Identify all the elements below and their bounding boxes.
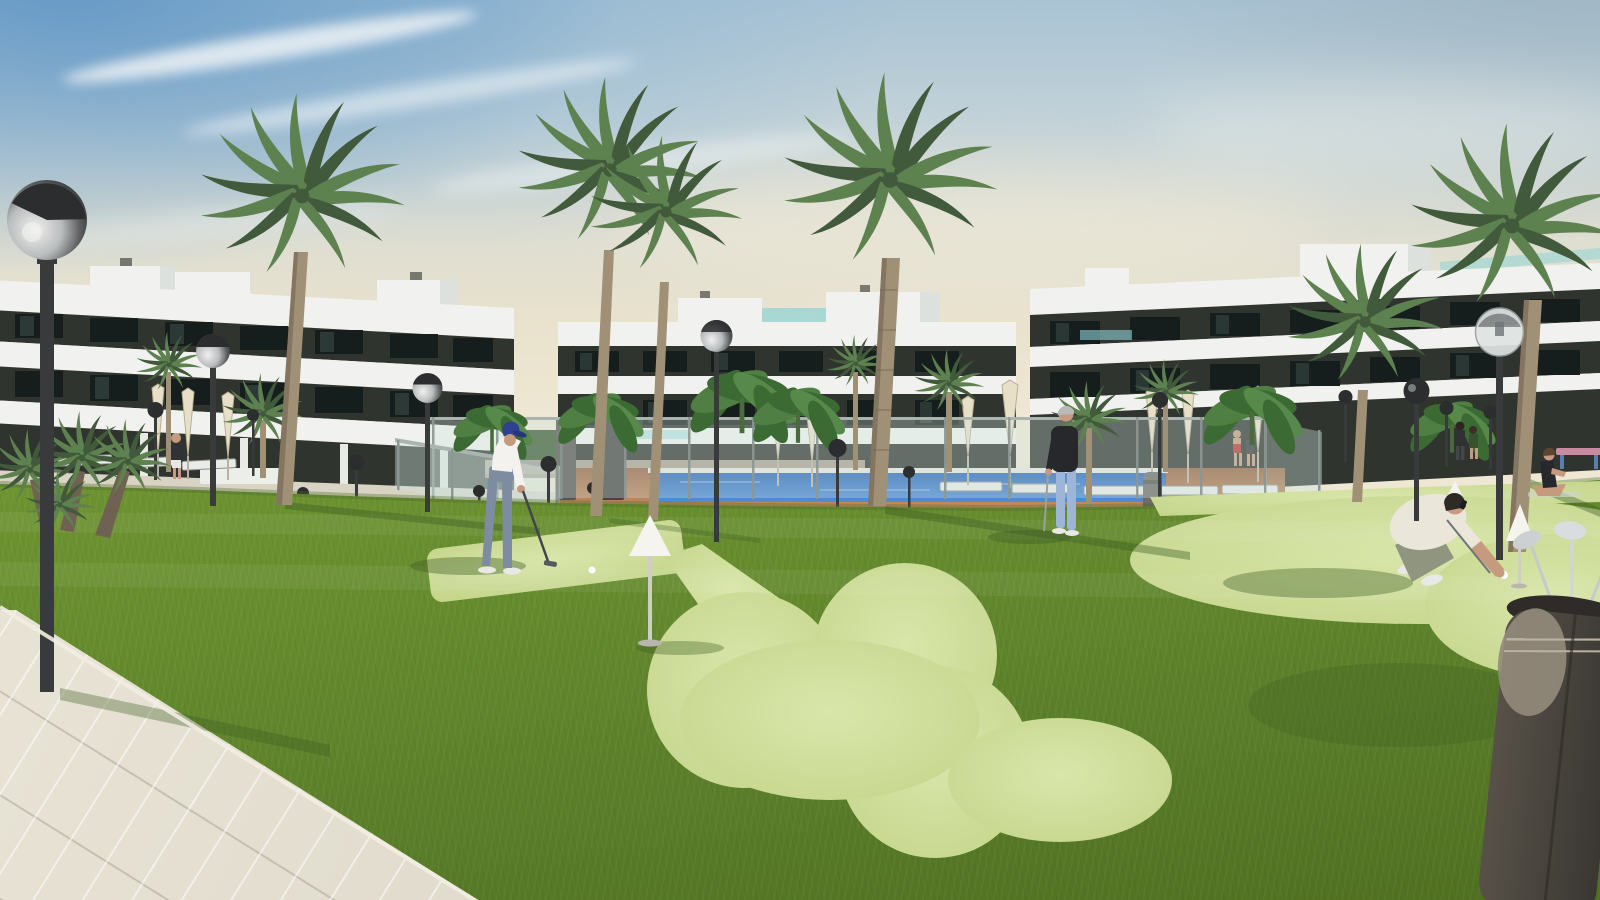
golf-ball bbox=[589, 567, 596, 574]
tall-fan-palms bbox=[199, 72, 1600, 552]
walkway-curb bbox=[0, 607, 478, 900]
resort-render bbox=[0, 0, 1600, 900]
foreground-layer bbox=[0, 0, 1600, 900]
man-leaning-on-putter bbox=[1044, 406, 1079, 536]
